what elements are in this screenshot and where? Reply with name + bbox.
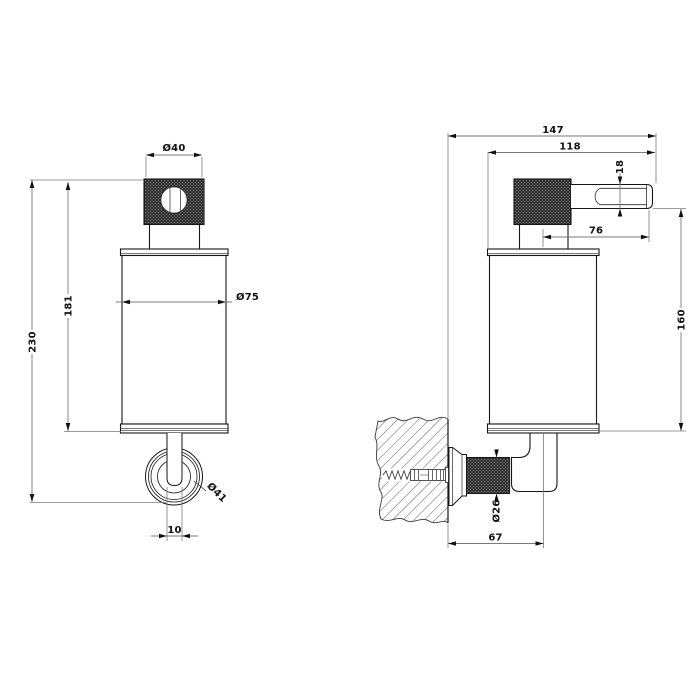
dim-lever-height-label: 18 bbox=[615, 160, 626, 174]
dim-cap-diameter-label: Ø40 bbox=[162, 142, 185, 154]
dim-lever-reach-label: 76 bbox=[589, 226, 603, 237]
front-lever-hole bbox=[161, 187, 187, 213]
technical-drawing: Ø40 Ø75 Ø41 10 181 bbox=[0, 0, 700, 700]
dim-height-below-lever-label: 160 bbox=[677, 309, 688, 330]
front-spout-nozzle bbox=[167, 433, 182, 486]
dim-body-diameter-label: Ø75 bbox=[236, 291, 259, 303]
dim-body-depth-label: 118 bbox=[559, 142, 580, 153]
wall-anchor-screw bbox=[382, 468, 449, 483]
front-dispenser-body bbox=[121, 249, 229, 433]
dim-body-height-label: 181 bbox=[64, 295, 75, 316]
dim-post-diameter-label: Ø26 bbox=[491, 499, 503, 522]
side-lever bbox=[571, 185, 653, 209]
side-dispenser-body bbox=[488, 249, 600, 433]
dim-total-depth-label: 147 bbox=[542, 125, 563, 136]
dim-spout-width-label: 10 bbox=[167, 525, 181, 536]
dim-total-height-label: 230 bbox=[28, 331, 39, 352]
mounting-post-knurl bbox=[467, 458, 510, 494]
drawing-canvas: Ø40 Ø75 Ø41 10 181 bbox=[0, 0, 700, 700]
dim-wall-to-axis-label: 67 bbox=[488, 533, 502, 544]
